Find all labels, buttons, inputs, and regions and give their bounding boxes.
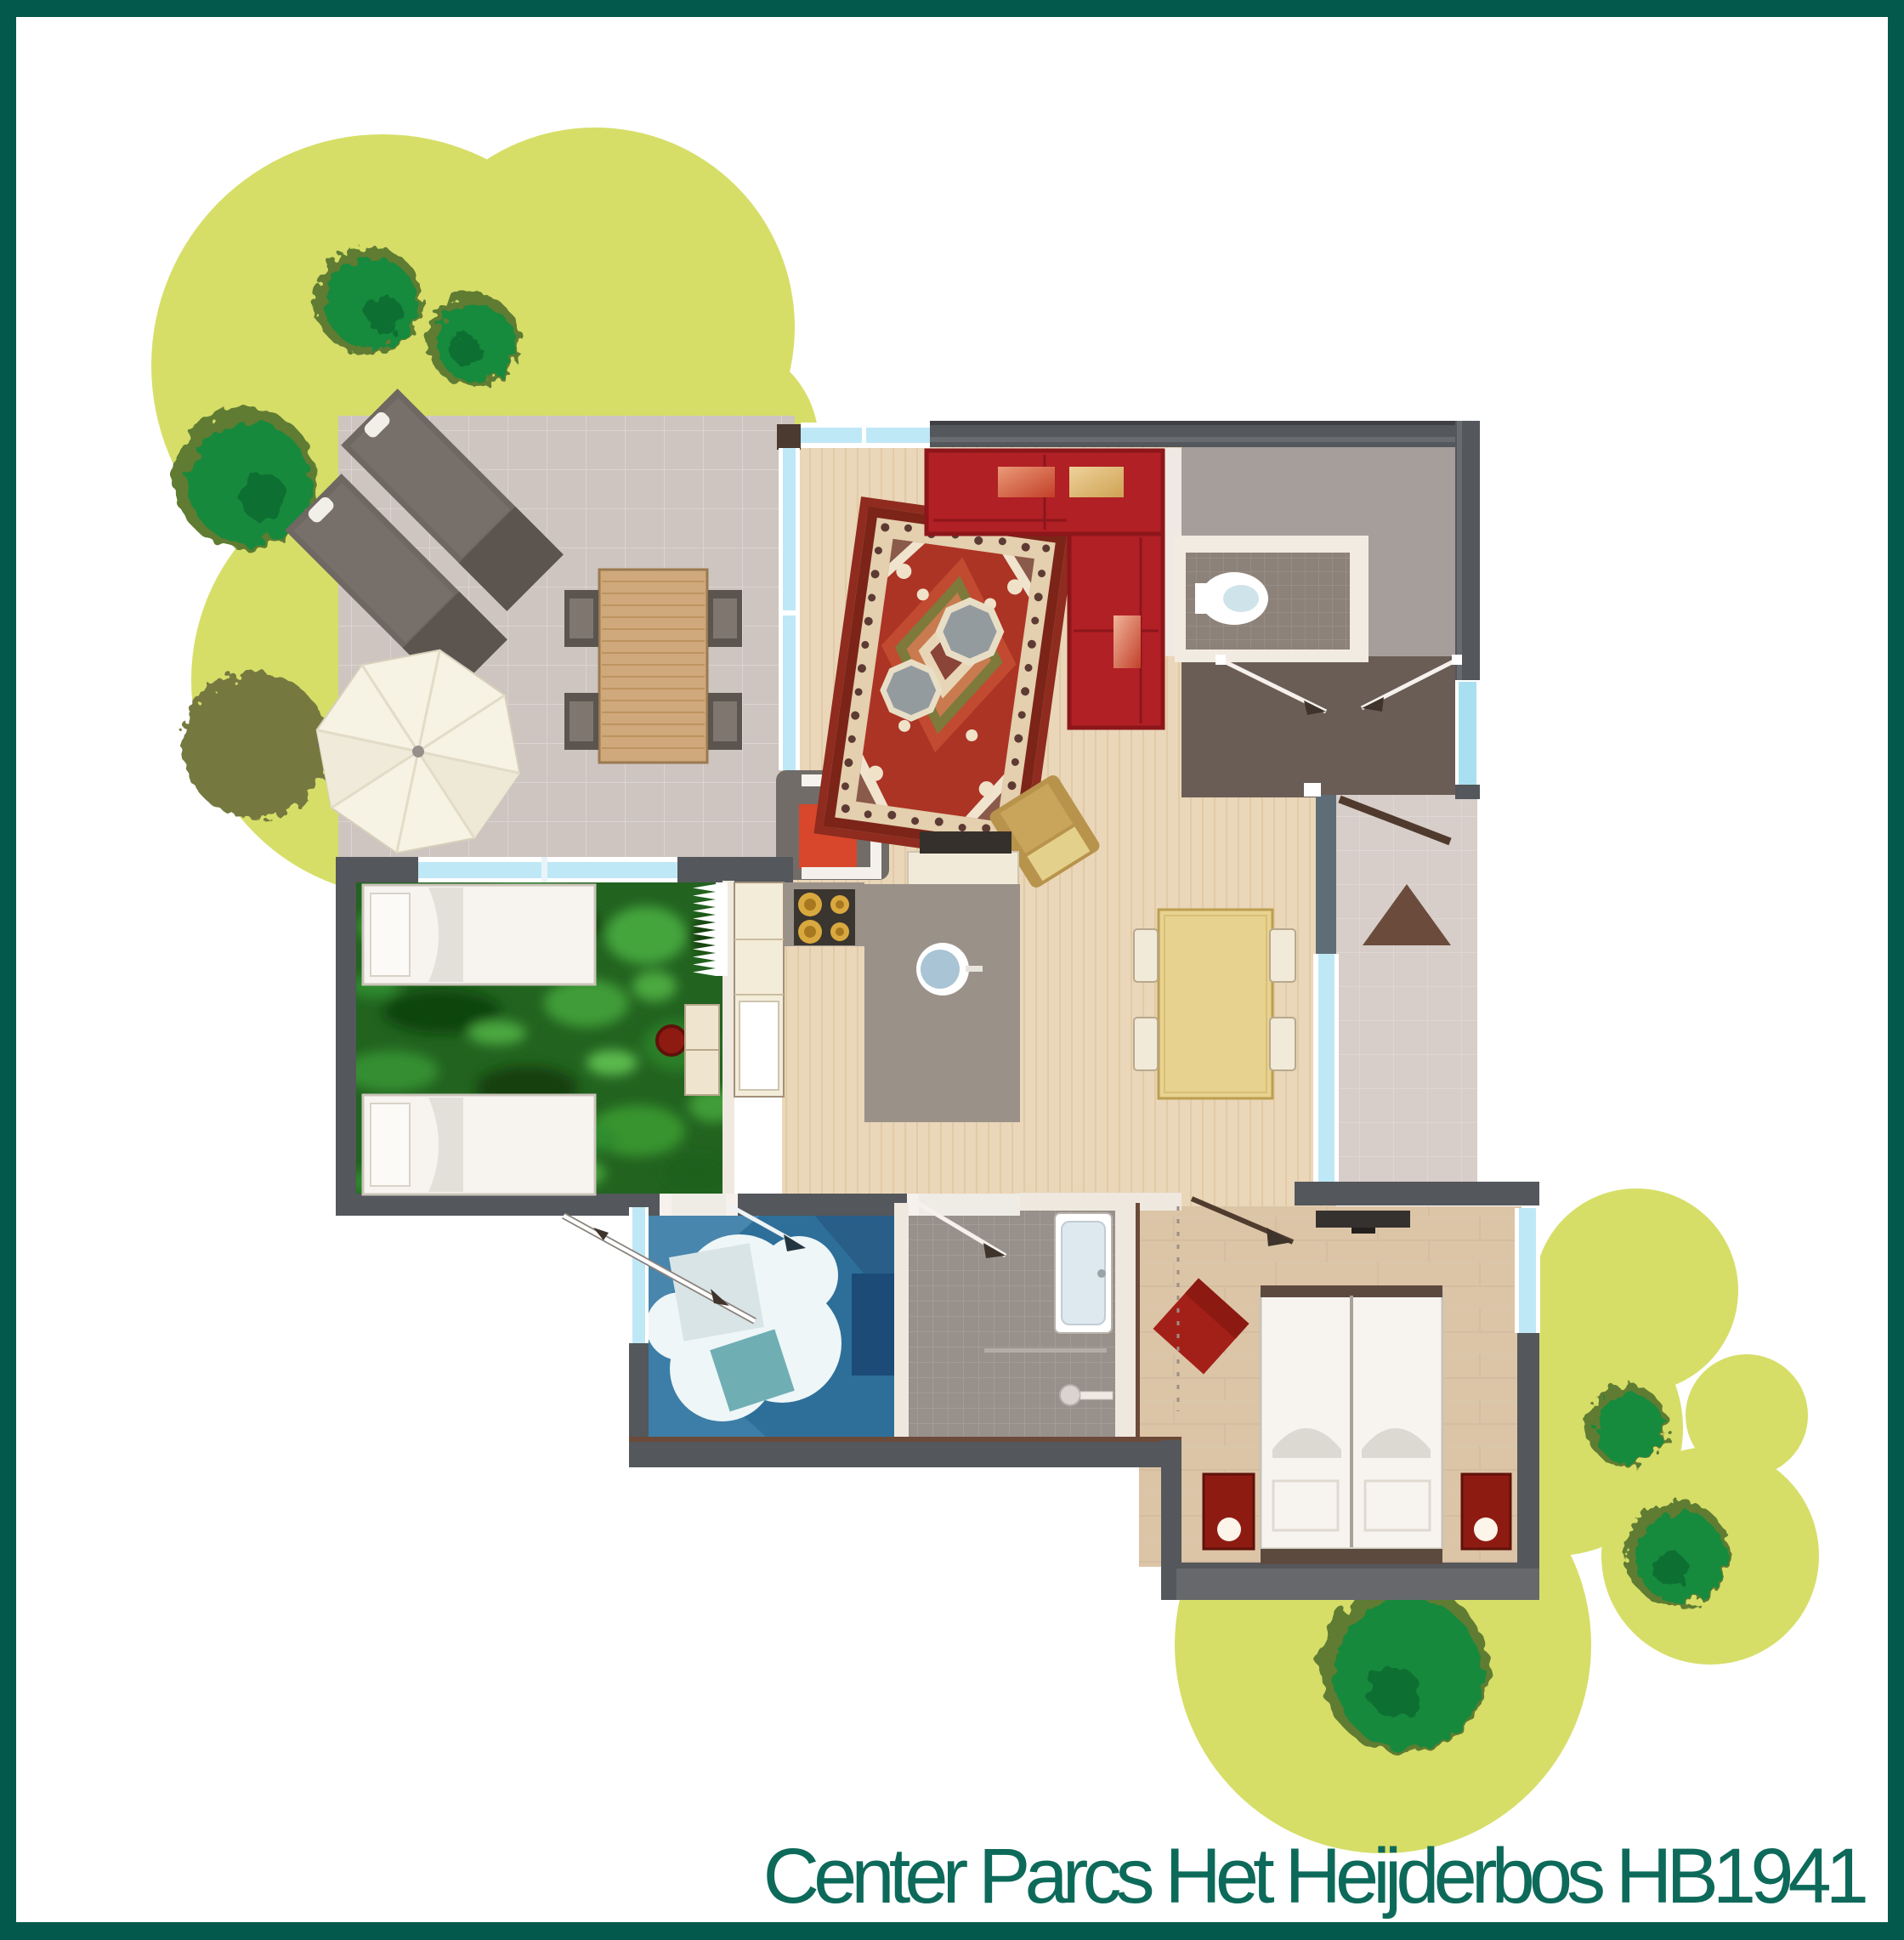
svg-text:Center Parcs Het Heijderbos HB: Center Parcs Het Heijderbos HB1941 [763, 1833, 1866, 1920]
